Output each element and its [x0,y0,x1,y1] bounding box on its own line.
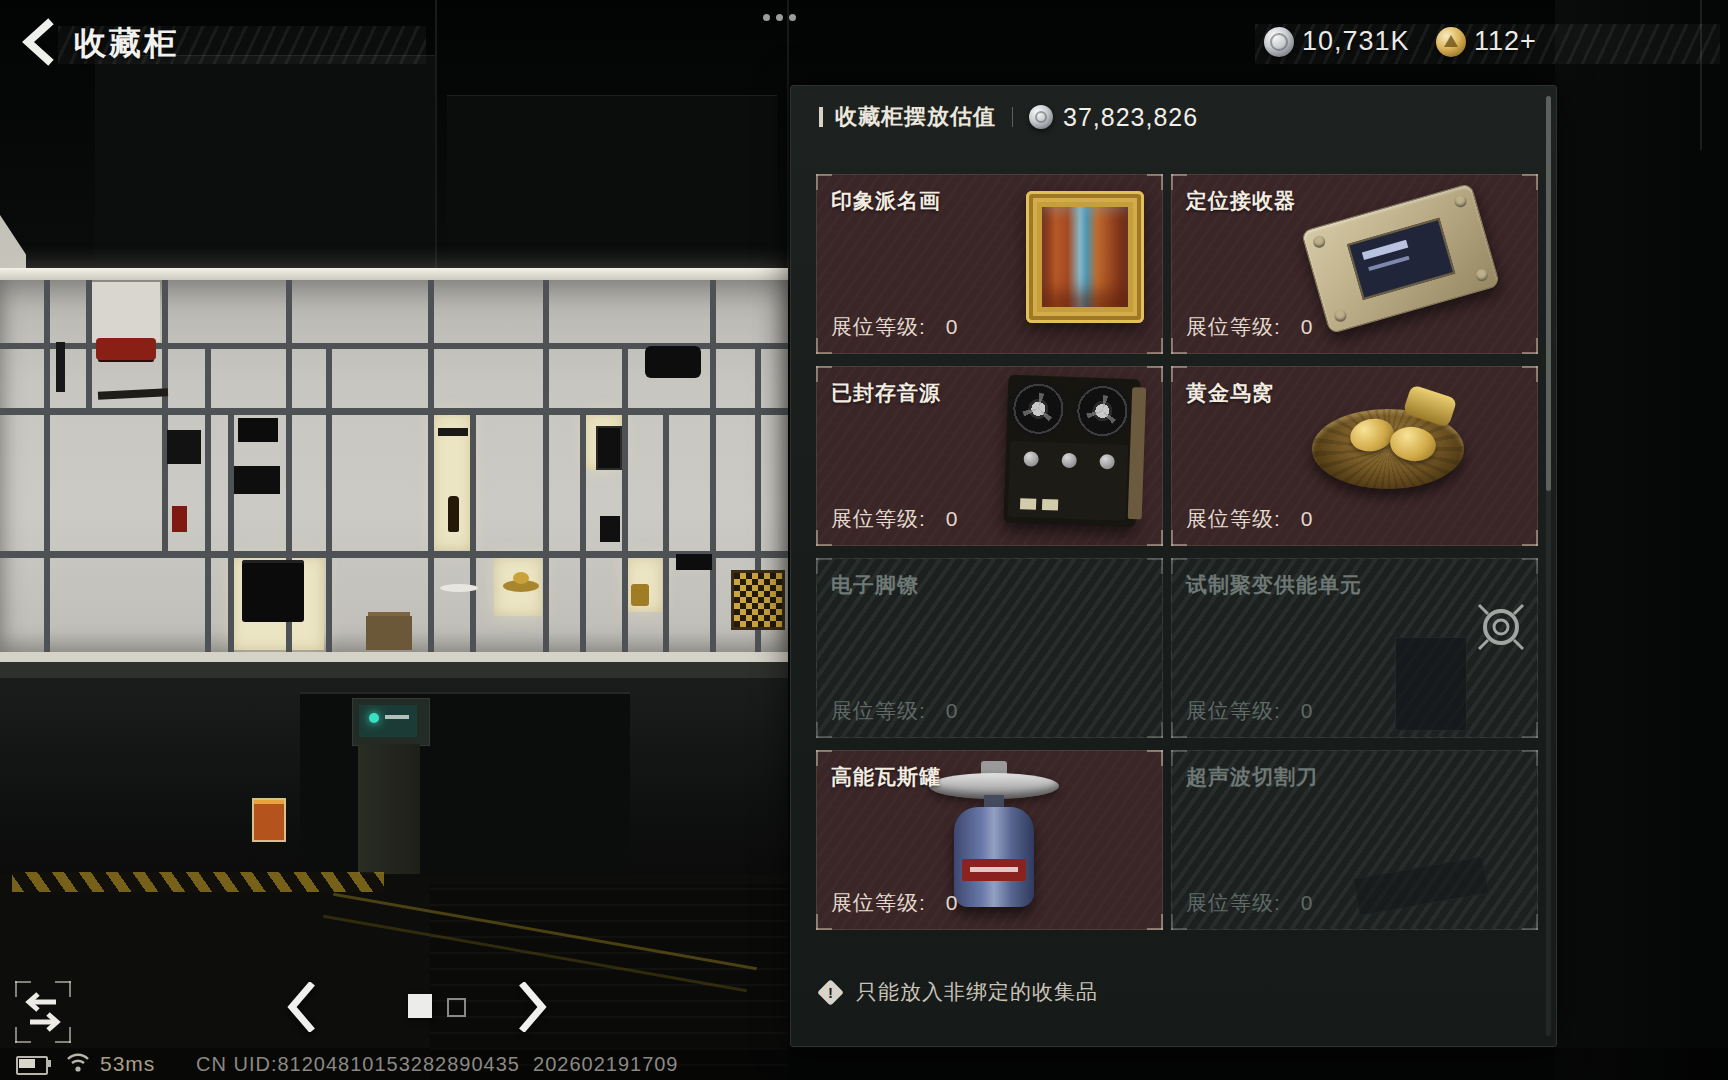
signal-icon [64,1052,92,1076]
cabinet-divider [326,343,332,652]
carousel-page-dot[interactable] [447,998,466,1017]
back-button[interactable] [18,18,62,66]
recorder-deck [1008,441,1129,521]
booth-level-value: 0 [946,699,959,722]
hazard-stripe [12,872,384,892]
display-item-projector [234,466,280,494]
gold-amount: 112+ [1474,26,1537,57]
ceiling-beam [787,0,789,280]
back-chevron-icon [18,18,62,66]
receiver-knob [1312,234,1327,249]
valuation-label: 收藏柜摆放估值 [835,102,996,132]
item-name: 已封存音源 [831,379,1148,407]
display-cabinet [0,280,788,652]
silver-coin-icon [1264,27,1294,57]
display-item-gold-egg [513,572,529,584]
collectible-card-fusion-power-unit[interactable]: 试制聚变供能单元 展位等级:0 [1171,558,1538,738]
cabinet-cell [90,282,160,342]
valuation-header: 收藏柜摆放估值 37,823,826 [819,102,1198,132]
canister-body [954,807,1034,907]
kiosk-indicator [369,713,379,723]
ceiling-panel [95,55,435,271]
receiver-knob [1474,268,1489,283]
collectible-grid: 印象派名画 展位等级:0 定位接收器 展位等级:0 [816,174,1538,930]
collectible-card-ultrasonic-cutter[interactable]: 超声波切割刀 展位等级:0 [1171,750,1538,930]
cabinet-divider [428,280,434,652]
bench-shadow [0,662,788,678]
alert-exclamation: ! [821,983,840,1002]
item-name: 黄金鸟窝 [1186,379,1523,407]
booth-level-label: 展位等级: [831,315,926,338]
cabinet-bench [0,652,788,662]
booth-level: 展位等级:0 [831,313,959,341]
carousel-page-dot-active[interactable] [408,994,432,1018]
booth-level: 展位等级:0 [831,505,959,533]
page-title: 收藏柜 [74,22,179,66]
cabinet-divider [228,408,234,652]
cabinet-divider [86,280,92,408]
accent-bar [819,107,823,127]
battery-fill [19,1059,35,1068]
booth-level-value: 0 [1301,699,1314,722]
switch-view-button[interactable] [16,982,70,1042]
ceiling-panel [447,95,777,271]
recorder-label [1042,499,1058,511]
display-item-rifle [98,388,168,400]
menu-dots-button[interactable] [760,8,799,26]
kiosk-pillar [358,744,420,884]
item-name: 超声波切割刀 [1186,763,1523,791]
recorder-knob [1061,453,1077,469]
cabinet-divider [0,408,788,415]
canister-label [962,859,1026,881]
booth-level-value: 0 [1301,507,1314,530]
item-name: 定位接收器 [1186,187,1523,215]
collection-panel: 收藏柜摆放估值 37,823,826 印象派名画 展位等级:0 定位接收器 [790,85,1557,1047]
collection-cabinet-screen: 收藏柜 10,731K 112+ 收藏柜摆放估值 37,823,826 印象派名… [0,0,1728,1080]
cabinet-divider [622,343,628,652]
display-item-sled [96,338,156,360]
collectible-card-positioning-receiver[interactable]: 定位接收器 展位等级:0 [1171,174,1538,354]
booth-level-value: 0 [946,507,959,530]
cabinet-divider [710,280,716,652]
recorder-knob [1023,451,1039,467]
display-item-wall-gun [438,428,468,436]
ceiling-beam [435,0,437,270]
display-item-gold-ornament [631,584,649,606]
receiver-knob [1333,308,1348,323]
cabinet-divider [543,280,549,652]
display-item-wood-stand [366,616,412,650]
dot-icon [789,14,796,21]
booth-level: 展位等级:0 [1186,505,1314,533]
display-item-couch [645,346,701,378]
cabinet-divider [44,280,50,652]
collectible-card-sealed-audio[interactable]: 已封存音源 展位等级:0 [816,366,1163,546]
display-item-briefcase [242,560,304,622]
carousel-next-button[interactable] [518,982,548,1036]
display-item-pole [56,342,65,392]
display-item-red-device [172,506,187,532]
kiosk-screen-text [385,715,409,719]
booth-level: 展位等级:0 [1186,313,1314,341]
battery-nub [48,1060,51,1067]
recorder-knob [1099,454,1115,470]
recorder-label [1020,498,1036,510]
right-wall-edge [1700,0,1702,150]
warning-poster [252,798,286,842]
currency-koen[interactable]: 10,731K [1264,26,1410,57]
cabinet-divider [162,280,168,551]
display-item-plaque [676,554,712,570]
display-item-bottle [448,496,459,532]
collectible-card-gas-canister[interactable]: 高能瓦斯罐 展位等级:0 [816,750,1163,930]
display-item-round-table [440,584,478,592]
cabinet-divider [663,408,669,652]
booth-level: 展位等级:0 [1186,889,1314,917]
cabinet-divider [205,343,211,652]
battery-icon [16,1056,50,1072]
booth-level: 展位等级:0 [1186,697,1314,725]
collectible-card-golden-nest[interactable]: 黄金鸟窝 展位等级:0 [1171,366,1538,546]
display-item-small-art [600,516,620,542]
silver-coin-icon [1029,105,1053,129]
valuation-value: 37,823,826 [1063,103,1198,132]
item-name: 电子脚镣 [831,571,1148,599]
display-item-framed-art [596,426,622,470]
cabinet-divider [0,551,788,558]
display-item-radio [167,430,201,464]
locate-reticle-icon [1471,597,1531,657]
server-uid-text: CN UID:81204810153282890435 202602191709 [196,1053,679,1076]
separator [1012,107,1013,127]
item-name: 高能瓦斯罐 [831,763,1148,791]
swap-arrows-icon [16,982,70,1042]
booth-level-value: 0 [1301,315,1314,338]
cutter-silhouette [1353,856,1490,916]
currency-gold[interactable]: 112+ [1436,26,1537,57]
doorway [300,692,630,874]
gold-coin-icon [1436,27,1466,57]
dot-icon [763,14,770,21]
receiver-screen [1347,218,1455,300]
kiosk-screen-glow [359,705,417,737]
koen-amount: 10,731K [1302,26,1410,57]
item-name: 印象派名画 [831,187,1148,215]
booth-level: 展位等级:0 [831,889,959,917]
kiosk-screen [352,698,430,746]
dot-icon [776,14,783,21]
chevron-right-icon [518,982,548,1032]
panel-scrollbar-thumb[interactable] [1546,96,1551,491]
panel-scrollbar-track [1546,96,1551,1036]
booth-level-label: 展位等级: [831,891,926,914]
booth-level-label: 展位等级: [1186,507,1281,530]
cabinet-divider [580,408,586,652]
display-item-camera [238,418,278,442]
fusion-unit-silhouette [1395,637,1467,731]
booth-level-value: 0 [1301,891,1314,914]
item-name: 试制聚变供能单元 [1186,571,1523,599]
right-wall [1555,0,1728,1080]
collectible-card-electronic-shackles[interactable]: 电子脚镣 展位等级:0 [816,558,1163,738]
ping-value: 53ms [100,1052,155,1076]
cabinet-top-light [0,268,788,280]
display-item-chessboard-box [731,570,785,630]
carousel-prev-button[interactable] [286,982,316,1036]
status-bar: 53ms CN UID:81204810153282890435 2026021… [0,1048,1728,1080]
collectible-card-impressionist-painting[interactable]: 印象派名画 展位等级:0 [816,174,1163,354]
booth-level-label: 展位等级: [831,507,926,530]
panel-warning: ! 只能放入非绑定的收集品 [821,978,1098,1006]
cabinet-divider [470,408,476,652]
chevron-left-icon [286,982,316,1032]
booth-level-label: 展位等级: [831,699,926,722]
booth-level-label: 展位等级: [1186,891,1281,914]
booth-level-value: 0 [946,315,959,338]
alert-diamond-icon: ! [817,979,844,1006]
booth-level-label: 展位等级: [1186,699,1281,722]
painting-canvas [1042,207,1128,307]
booth-level-label: 展位等级: [1186,315,1281,338]
booth-level: 展位等级:0 [831,697,959,725]
booth-level-value: 0 [946,891,959,914]
warning-text: 只能放入非绑定的收集品 [856,978,1098,1006]
